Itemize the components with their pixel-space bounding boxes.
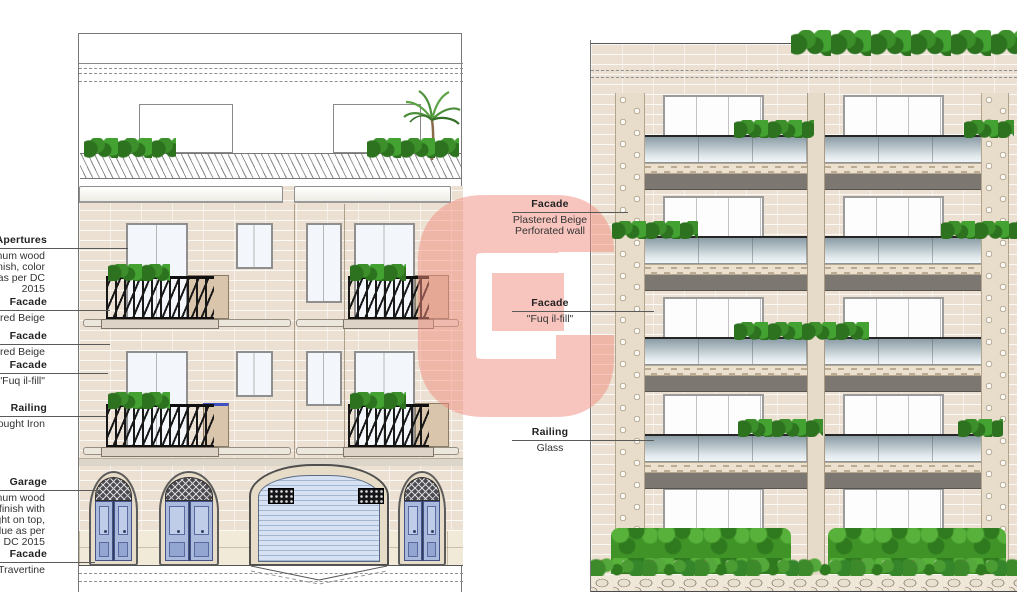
annotation-label: Apertures <box>0 234 47 246</box>
fuq-il-fill-band <box>645 264 807 275</box>
door-leaves <box>95 501 132 561</box>
dashed-level-line <box>591 77 1017 78</box>
annotation-label: Facade <box>531 297 568 309</box>
perforated-wall-column <box>615 93 645 575</box>
garage-door <box>249 464 389 566</box>
annotation-label: Facade <box>10 548 47 560</box>
floor-slab <box>825 174 981 190</box>
elevation-drawing-canvas: Aperturesninum woodfinish, colore as per… <box>0 0 1024 609</box>
balustrade-plants <box>738 419 823 437</box>
balcony-slab <box>101 319 219 329</box>
balcony-plants <box>350 264 406 281</box>
leader-line <box>0 373 108 374</box>
window <box>236 351 273 397</box>
door-leaf <box>423 501 441 561</box>
stair-window <box>306 351 342 406</box>
glass-balustrade <box>825 135 981 163</box>
balcony-plants <box>108 264 170 281</box>
door-leaf <box>95 501 113 561</box>
parapet-line <box>79 63 463 64</box>
recess-line <box>294 204 295 460</box>
leader-line <box>0 490 100 491</box>
annotation-text: "Fuq il-fill" <box>527 314 574 325</box>
wrought-iron-railing <box>106 276 214 319</box>
window <box>236 223 273 269</box>
annotation-label: Facade <box>10 359 47 371</box>
annotation-label: Railing <box>11 402 47 414</box>
leader-line <box>512 440 654 441</box>
recess-line <box>344 204 345 460</box>
door-leaf <box>190 501 214 561</box>
balcony-slab <box>343 319 434 329</box>
annotation-text: tered Beige <box>0 347 45 358</box>
balcony-plants <box>108 392 170 409</box>
balustrade-plants <box>612 221 698 239</box>
wrought-iron-railing <box>348 404 429 447</box>
string-course-shadow <box>79 458 463 466</box>
leader-line <box>512 212 628 213</box>
annotation-text: 2015 <box>22 284 45 295</box>
cornice <box>294 186 451 203</box>
balcony-plants <box>350 392 406 409</box>
door-leaves <box>165 501 213 561</box>
dashed-level-line <box>79 73 463 74</box>
annotation-text: Wrought Iron <box>0 419 45 430</box>
annotation-text: tered Beige <box>0 313 45 324</box>
fuq-il-fill-band <box>825 264 981 275</box>
leader-line <box>0 248 128 249</box>
balcony-slab <box>343 447 434 457</box>
door-panel <box>169 542 185 557</box>
floor-slab <box>825 376 981 392</box>
fuq-il-fill-band <box>825 365 981 376</box>
fuq-il-fill-band <box>645 163 807 174</box>
balustrade-plants <box>941 221 1017 239</box>
annotation-text: "Fuq il-fill" <box>0 376 45 387</box>
door-leaf <box>404 501 422 561</box>
glass-balustrade <box>825 434 981 462</box>
cornice <box>79 186 283 203</box>
fuq-il-fill-band <box>825 462 981 473</box>
glass-balustrade <box>645 236 807 264</box>
roof-shrubs <box>367 138 459 158</box>
door-leaf <box>114 501 132 561</box>
balustrade-plants <box>958 419 1003 437</box>
garage-ramp-lines <box>249 563 389 585</box>
annotation-text: Travertine <box>0 565 45 576</box>
parapet-plants <box>791 30 1017 56</box>
annotation-text: Glass <box>537 443 564 454</box>
annotation-label: Facade <box>10 330 47 342</box>
rubble-stone-base <box>591 575 1017 592</box>
perforated-wall-column <box>981 93 1009 575</box>
front-elevation <box>78 33 462 592</box>
floor-slab <box>825 275 981 291</box>
annotation-label: Facade <box>10 296 47 308</box>
glass-balustrade <box>645 337 807 365</box>
vent-grille <box>358 488 384 504</box>
annotation-label: Railing <box>532 426 568 438</box>
door-panel <box>194 542 210 557</box>
glass-balustrade <box>825 337 981 365</box>
fuq-il-fill-band <box>645 365 807 376</box>
flower-bed <box>591 558 1017 576</box>
wrought-iron-railing <box>348 276 429 319</box>
annotation-label: Garage <box>10 476 47 488</box>
glass-balustrade <box>645 135 807 163</box>
balustrade-plants <box>734 322 869 340</box>
door-panel <box>427 542 437 557</box>
fuq-il-fill-band <box>645 462 807 473</box>
dashed-level-line <box>591 70 1017 71</box>
entrance-door <box>89 471 138 566</box>
side-elevation <box>590 40 1016 592</box>
entrance-door <box>398 471 446 566</box>
wrought-iron-railing <box>106 404 214 447</box>
fuq-il-fill-band <box>825 163 981 174</box>
balustrade-plants <box>734 120 814 138</box>
floor-slab <box>825 473 981 489</box>
door-panel <box>408 542 418 557</box>
dashed-level-line <box>79 81 463 82</box>
roof-shrubs <box>84 138 176 158</box>
balustrade-plants <box>964 120 1014 138</box>
fanlight <box>404 477 440 501</box>
floor-slab <box>645 473 807 489</box>
entrance-door <box>159 471 219 566</box>
glass-balustrade <box>825 236 981 264</box>
annotation-text: Perforated wall <box>515 226 585 237</box>
annotation-label: Facade <box>531 198 568 210</box>
floor-slab <box>645 275 807 291</box>
annotation-text: DC 2015 <box>4 537 45 548</box>
door-leaves <box>404 501 440 561</box>
fanlight <box>95 477 132 501</box>
stair-window <box>306 223 342 303</box>
fanlight <box>165 477 213 501</box>
door-panel <box>118 542 128 557</box>
leader-line <box>0 310 110 311</box>
balcony-slab <box>101 447 219 457</box>
vent-grille <box>268 488 294 504</box>
leader-line <box>512 311 654 312</box>
leader-line <box>0 416 106 417</box>
leader-line <box>0 562 95 563</box>
leader-line <box>0 344 110 345</box>
floor-slab <box>645 376 807 392</box>
dashed-level-line <box>79 68 463 69</box>
door-panel <box>99 542 109 557</box>
door-leaf <box>165 501 189 561</box>
glass-balustrade <box>645 434 807 462</box>
floor-slab <box>645 174 807 190</box>
